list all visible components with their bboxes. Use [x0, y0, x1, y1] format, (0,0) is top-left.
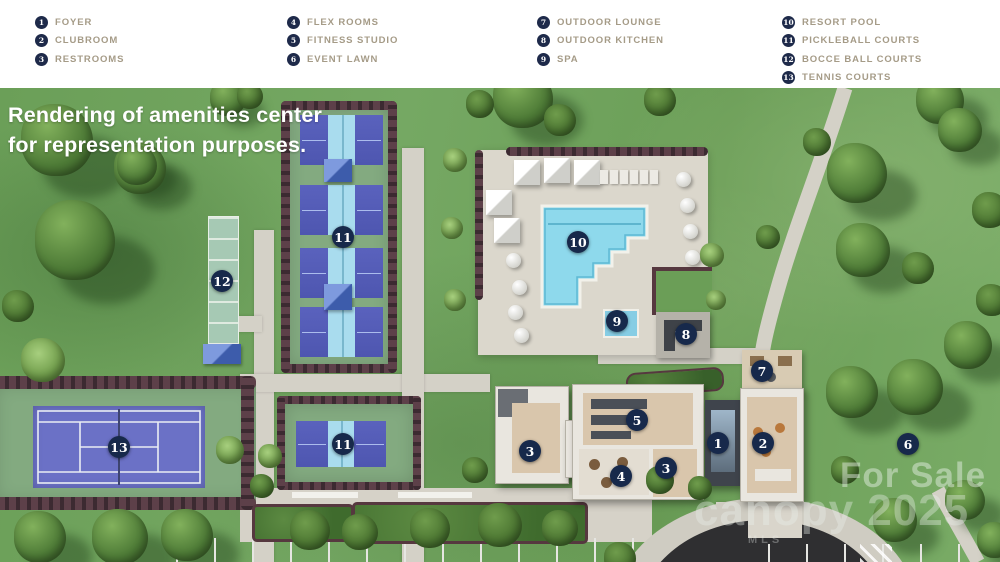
hedge: [281, 364, 397, 373]
cabana: [514, 160, 540, 185]
legend-item-tennis-courts: 13TENNIS COURTS: [782, 69, 922, 88]
restrooms-interior: [512, 403, 560, 473]
legend-item-label: RESTROOMS: [55, 54, 124, 65]
legend-item-label: SPA: [557, 54, 579, 65]
tree: [14, 511, 66, 562]
palm-tree: [441, 217, 463, 239]
legend-item-bocce-ball-courts: 12BOCCE BALL COURTS: [782, 50, 922, 69]
cabana: [544, 158, 570, 183]
map-marker-clubroom: 2: [752, 432, 774, 454]
tree: [887, 359, 943, 415]
parking-row-east: [732, 544, 966, 562]
patio-table: [589, 459, 600, 470]
umbrella: [680, 198, 695, 213]
legend-number-badge: 10: [782, 16, 795, 29]
palm-tree: [700, 243, 724, 267]
disclaimer-line-2: for representation purposes.: [8, 130, 322, 160]
lounge-chair: [630, 170, 638, 184]
umbrella: [514, 328, 529, 343]
amenities-site-map: Rendering of amenities center for repres…: [0, 88, 1000, 562]
legend-number-badge: 12: [782, 53, 795, 66]
map-marker-bocce-ball-courts: 12: [211, 270, 233, 292]
pickleball-court: [355, 248, 383, 298]
pickleball-court: [300, 307, 328, 357]
legend-item-label: PICKLEBALL COURTS: [802, 35, 920, 46]
bush: [462, 457, 488, 483]
legend-number-badge: 2: [35, 34, 48, 47]
fitness-flex-wing: [572, 384, 704, 500]
legend-item-label: FOYER: [55, 17, 92, 28]
legend-column-2: 4FLEX ROOMS5FITNESS STUDIO6EVENT LAWN: [287, 13, 398, 69]
hedge: [506, 147, 708, 156]
resort-pool: [534, 202, 654, 312]
pickleball-kitchen-stripe: [328, 115, 355, 165]
legend-number-badge: 13: [782, 71, 795, 84]
bush: [290, 510, 330, 550]
tree: [827, 143, 887, 203]
kitchen-counter: [664, 331, 675, 351]
palm-tree: [258, 444, 282, 468]
hedge: [277, 396, 421, 404]
trellis: [292, 492, 358, 498]
palm-tree: [21, 338, 65, 382]
bush: [410, 508, 450, 548]
map-marker-spa: 9: [606, 310, 628, 332]
legend-number-badge: 4: [287, 16, 300, 29]
tree: [92, 509, 148, 562]
palm-tree: [706, 290, 726, 310]
legend-number-badge: 7: [537, 16, 550, 29]
watermark-mls: MLS: [748, 534, 783, 546]
bar-counter: [755, 469, 791, 481]
bush: [250, 474, 274, 498]
trellis: [398, 492, 472, 498]
map-marker-resort-pool: 10: [567, 231, 589, 253]
legend-item-label: BOCCE BALL COURTS: [802, 54, 922, 65]
legend-number-badge: 6: [287, 53, 300, 66]
bush: [756, 225, 780, 249]
palm-tree: [444, 289, 466, 311]
hedge: [277, 396, 285, 490]
legend-item-label: FLEX ROOMS: [307, 17, 379, 28]
table: [775, 423, 785, 433]
legend-item-foyer: 1FOYER: [35, 13, 124, 32]
map-marker-pickleball-courts: 11: [332, 226, 354, 248]
legend-item-fitness-studio: 5FITNESS STUDIO: [287, 32, 398, 51]
tree: [826, 366, 878, 418]
legend-number-badge: 8: [537, 34, 550, 47]
deck-lawn-pocket: [652, 267, 712, 315]
gym-equipment-row: [591, 399, 647, 409]
map-marker-foyer: 1: [707, 432, 729, 454]
legend-item-label: OUTDOOR LOUNGE: [557, 17, 661, 28]
legend-column-3: 7OUTDOOR LOUNGE8OUTDOOR KITCHEN9SPA: [537, 13, 664, 69]
umbrella: [676, 172, 691, 187]
bush: [478, 503, 522, 547]
legend-item-label: FITNESS STUDIO: [307, 35, 398, 46]
hedge: [475, 150, 483, 300]
lounge-chair: [650, 170, 658, 184]
legend-bar: 1FOYER2CLUBROOM3RESTROOMS 4FLEX ROOMS5FI…: [0, 0, 1000, 88]
bush: [544, 104, 576, 136]
bush: [342, 514, 378, 550]
bush: [803, 128, 831, 156]
tree: [938, 108, 982, 152]
umbrella: [506, 253, 521, 268]
cabana: [494, 218, 520, 243]
bush: [466, 90, 494, 118]
legend-item-label: TENNIS COURTS: [802, 72, 891, 83]
legend-column-4: 10RESORT POOL11PICKLEBALL COURTS12BOCCE …: [782, 13, 922, 87]
legend-column-1: 1FOYER2CLUBROOM3RESTROOMS: [35, 13, 124, 69]
legend-number-badge: 1: [35, 16, 48, 29]
umbrella: [512, 280, 527, 295]
pickleball-kitchen-stripe: [328, 307, 355, 357]
legend-item-label: RESORT POOL: [802, 17, 881, 28]
pickleball-court: [355, 115, 383, 165]
palm-tree: [216, 436, 244, 464]
hedge: [388, 101, 397, 373]
bush: [902, 252, 934, 284]
map-marker-restrooms-east: 3: [655, 457, 677, 479]
lounge-chair: [610, 170, 618, 184]
accessible-parking-hatch: [860, 544, 892, 562]
cabana: [574, 160, 600, 185]
cabana: [486, 190, 512, 215]
legend-number-badge: 3: [35, 53, 48, 66]
map-marker-pickleball-court-single: 11: [332, 433, 354, 455]
legend-item-outdoor-lounge: 7OUTDOOR LOUNGE: [537, 13, 664, 32]
map-marker-outdoor-lounge: 7: [751, 360, 773, 382]
outdoor-sofa: [778, 356, 792, 366]
umbrella: [508, 305, 523, 320]
umbrella: [683, 224, 698, 239]
tree: [161, 509, 213, 561]
bush: [972, 192, 1000, 228]
hedge: [413, 396, 421, 490]
hedge: [0, 497, 256, 510]
tree: [944, 321, 992, 369]
gym-equipment-row: [591, 431, 631, 439]
legend-item-label: CLUBROOM: [55, 35, 118, 46]
court-awning: [324, 159, 352, 182]
bush: [2, 290, 34, 322]
pickleball-court: [300, 185, 328, 235]
map-marker-outdoor-kitchen: 8: [675, 323, 697, 345]
map-marker-restrooms-west: 3: [519, 440, 541, 462]
legend-item-pickleball-courts: 11PICKLEBALL COURTS: [782, 32, 922, 51]
legend-item-spa: 9SPA: [537, 50, 664, 69]
bush: [976, 284, 1000, 316]
legend-item-event-lawn: 6EVENT LAWN: [287, 50, 398, 69]
legend-item-flex-rooms: 4FLEX ROOMS: [287, 13, 398, 32]
tree: [836, 223, 890, 277]
map-marker-fitness-studio: 5: [626, 409, 648, 431]
lounge-chair: [620, 170, 628, 184]
hedge: [277, 482, 421, 490]
bush: [542, 510, 578, 546]
bocce-awning: [203, 344, 241, 364]
legend-number-badge: 11: [782, 34, 795, 47]
legend-item-resort-pool: 10RESORT POOL: [782, 13, 922, 32]
court-awning: [324, 284, 352, 310]
legend-item-label: EVENT LAWN: [307, 54, 378, 65]
legend-item-label: OUTDOOR KITCHEN: [557, 35, 664, 46]
lounge-chair: [600, 170, 608, 184]
tree: [977, 522, 1000, 558]
tree: [35, 200, 115, 280]
map-marker-tennis-courts: 13: [108, 436, 130, 458]
map-marker-event-lawn: 6: [897, 433, 919, 455]
lounge-chair: [640, 170, 648, 184]
legend-item-outdoor-kitchen: 8OUTDOOR KITCHEN: [537, 32, 664, 51]
umbrella: [685, 250, 700, 265]
restrooms-wing: [495, 386, 569, 484]
disclaimer-line-1: Rendering of amenities center: [8, 100, 322, 130]
map-marker-flex-rooms: 4: [610, 465, 632, 487]
palm-tree: [443, 148, 467, 172]
pickleball-court: [354, 421, 386, 467]
legend-item-clubroom: 2CLUBROOM: [35, 32, 124, 51]
pickleball-court: [296, 421, 328, 467]
legend-number-badge: 5: [287, 34, 300, 47]
legend-item-restrooms: 3RESTROOMS: [35, 50, 124, 69]
watermark-canopy: canopy 2025: [694, 486, 969, 536]
legend-number-badge: 9: [537, 53, 550, 66]
pickleball-court: [355, 185, 383, 235]
pickleball-court: [355, 307, 383, 357]
disclaimer-note: Rendering of amenities center for repres…: [8, 100, 322, 160]
site-plan-screenshot: 1FOYER2CLUBROOM3RESTROOMS 4FLEX ROOMS5FI…: [0, 0, 1000, 562]
